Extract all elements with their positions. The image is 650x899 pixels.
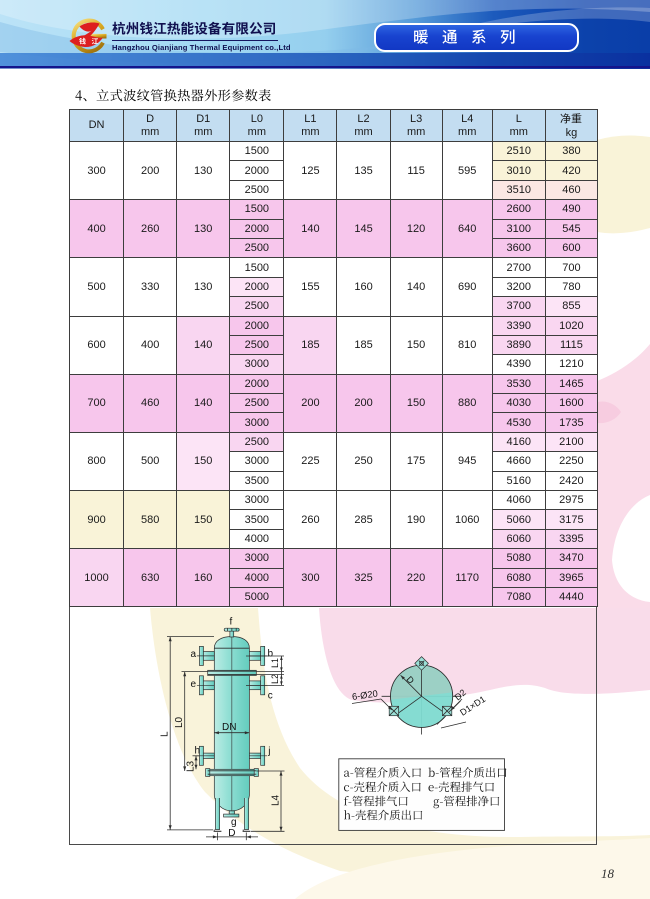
svg-text:L2: L2 xyxy=(270,674,280,684)
svg-text:j: j xyxy=(267,746,270,757)
svg-text:h: h xyxy=(195,746,201,757)
svg-text:g: g xyxy=(231,817,237,828)
svg-text:L4: L4 xyxy=(271,794,282,806)
svg-text:D2: D2 xyxy=(453,687,468,702)
svg-text:e: e xyxy=(191,679,197,690)
svg-text:D: D xyxy=(228,828,235,839)
svg-text:b: b xyxy=(268,649,274,660)
svg-text:L: L xyxy=(160,731,171,737)
svg-text:L0: L0 xyxy=(174,716,185,728)
svg-text:L1: L1 xyxy=(270,658,280,668)
svg-text:a: a xyxy=(191,649,197,660)
svg-text:DN: DN xyxy=(222,722,236,733)
svg-text:L3: L3 xyxy=(186,760,197,772)
svg-text:c: c xyxy=(268,691,273,702)
svg-text:f: f xyxy=(230,617,233,628)
